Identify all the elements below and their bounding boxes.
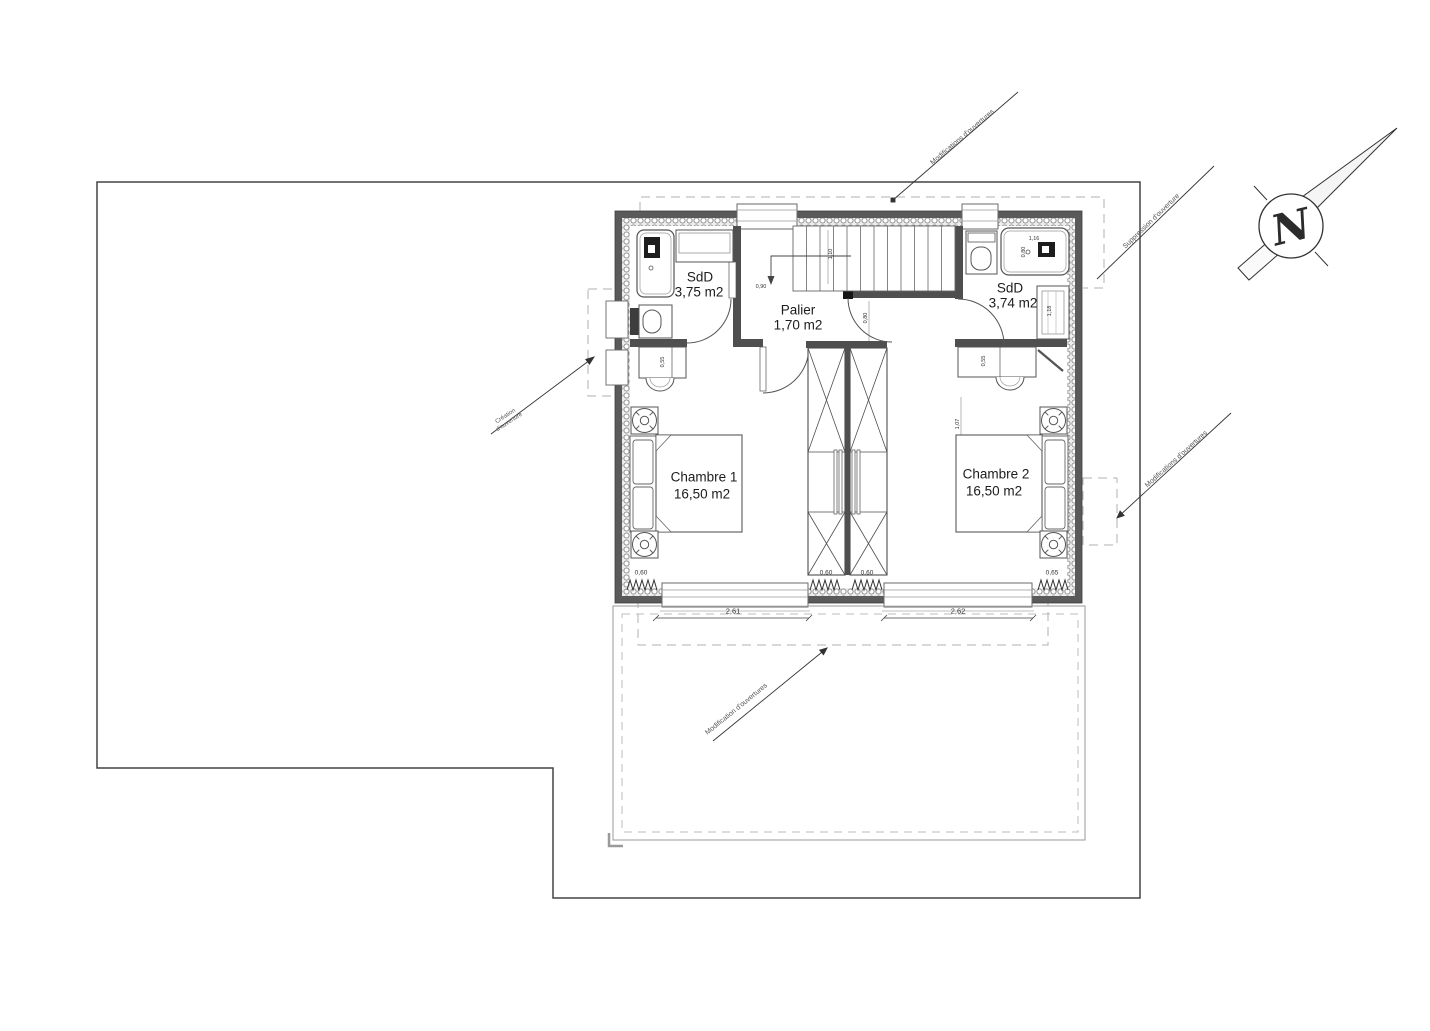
room-label-sdd1-name: SdD: [687, 270, 713, 285]
room-label-chambre1-area: 16,50 m2: [674, 487, 730, 502]
dim-stair-width: 0,90: [756, 284, 767, 290]
toilet-sdd1: [630, 305, 672, 338]
window-top-left: [737, 204, 797, 229]
dim-desk2: 0,55: [981, 356, 987, 367]
vanity-sdd1: [676, 230, 733, 262]
room-label-palier-area: 1,70 m2: [774, 318, 823, 333]
floor-plan: SdD 3,75 m2 Palier 1,70 m2 SdD 3,74 m2 C…: [0, 0, 1430, 1031]
dimension-lines: [653, 615, 1036, 621]
wardrobe-left: [808, 348, 845, 575]
terrace: [609, 606, 1085, 846]
toilet-sdd2: [966, 231, 997, 274]
dim-shower-depth: 0,80: [1021, 247, 1027, 258]
room-label-palier-name: Palier: [781, 303, 816, 318]
dim-radiator-left: 0,60: [635, 570, 648, 577]
room-label-sdd1-area: 3,75 m2: [675, 285, 724, 300]
dim-radiator-center-left: 0,60: [820, 570, 833, 577]
room-label-chambre2-area: 16,50 m2: [966, 484, 1022, 499]
floor-plan-drawing: [0, 0, 1430, 1031]
bathtub-sdd1: [637, 230, 674, 297]
dim-radiator-right: 0,65: [1046, 570, 1059, 577]
dim-window-left: 2,61: [726, 607, 741, 616]
window-top-right: [962, 204, 998, 229]
compass-north-arrow: [1238, 128, 1397, 280]
room-label-chambre1-name: Chambre 1: [671, 470, 738, 485]
room-label-chambre2-name: Chambre 2: [963, 467, 1030, 482]
towel-radiator-sdd2: [1037, 286, 1069, 339]
dim-radiator-center-right: 0,60: [861, 570, 874, 577]
dim-door-palier: 0,80: [863, 313, 869, 324]
dim-shower-width: 1,16: [1029, 236, 1040, 242]
dim-towel-rail: 1,18: [1047, 306, 1053, 317]
dim-bed2-offset: 1,07: [955, 419, 961, 430]
room-label-sdd2-name: SdD: [997, 281, 1023, 296]
compass-needle: [1302, 128, 1397, 211]
dim-stair-run: 1,10: [828, 249, 834, 260]
room-label-sdd2-area: 3,74 m2: [989, 296, 1038, 311]
wardrobe-right: [850, 348, 887, 575]
dim-window-right: 2,62: [951, 607, 966, 616]
dim-desk1: 0,55: [660, 357, 666, 368]
